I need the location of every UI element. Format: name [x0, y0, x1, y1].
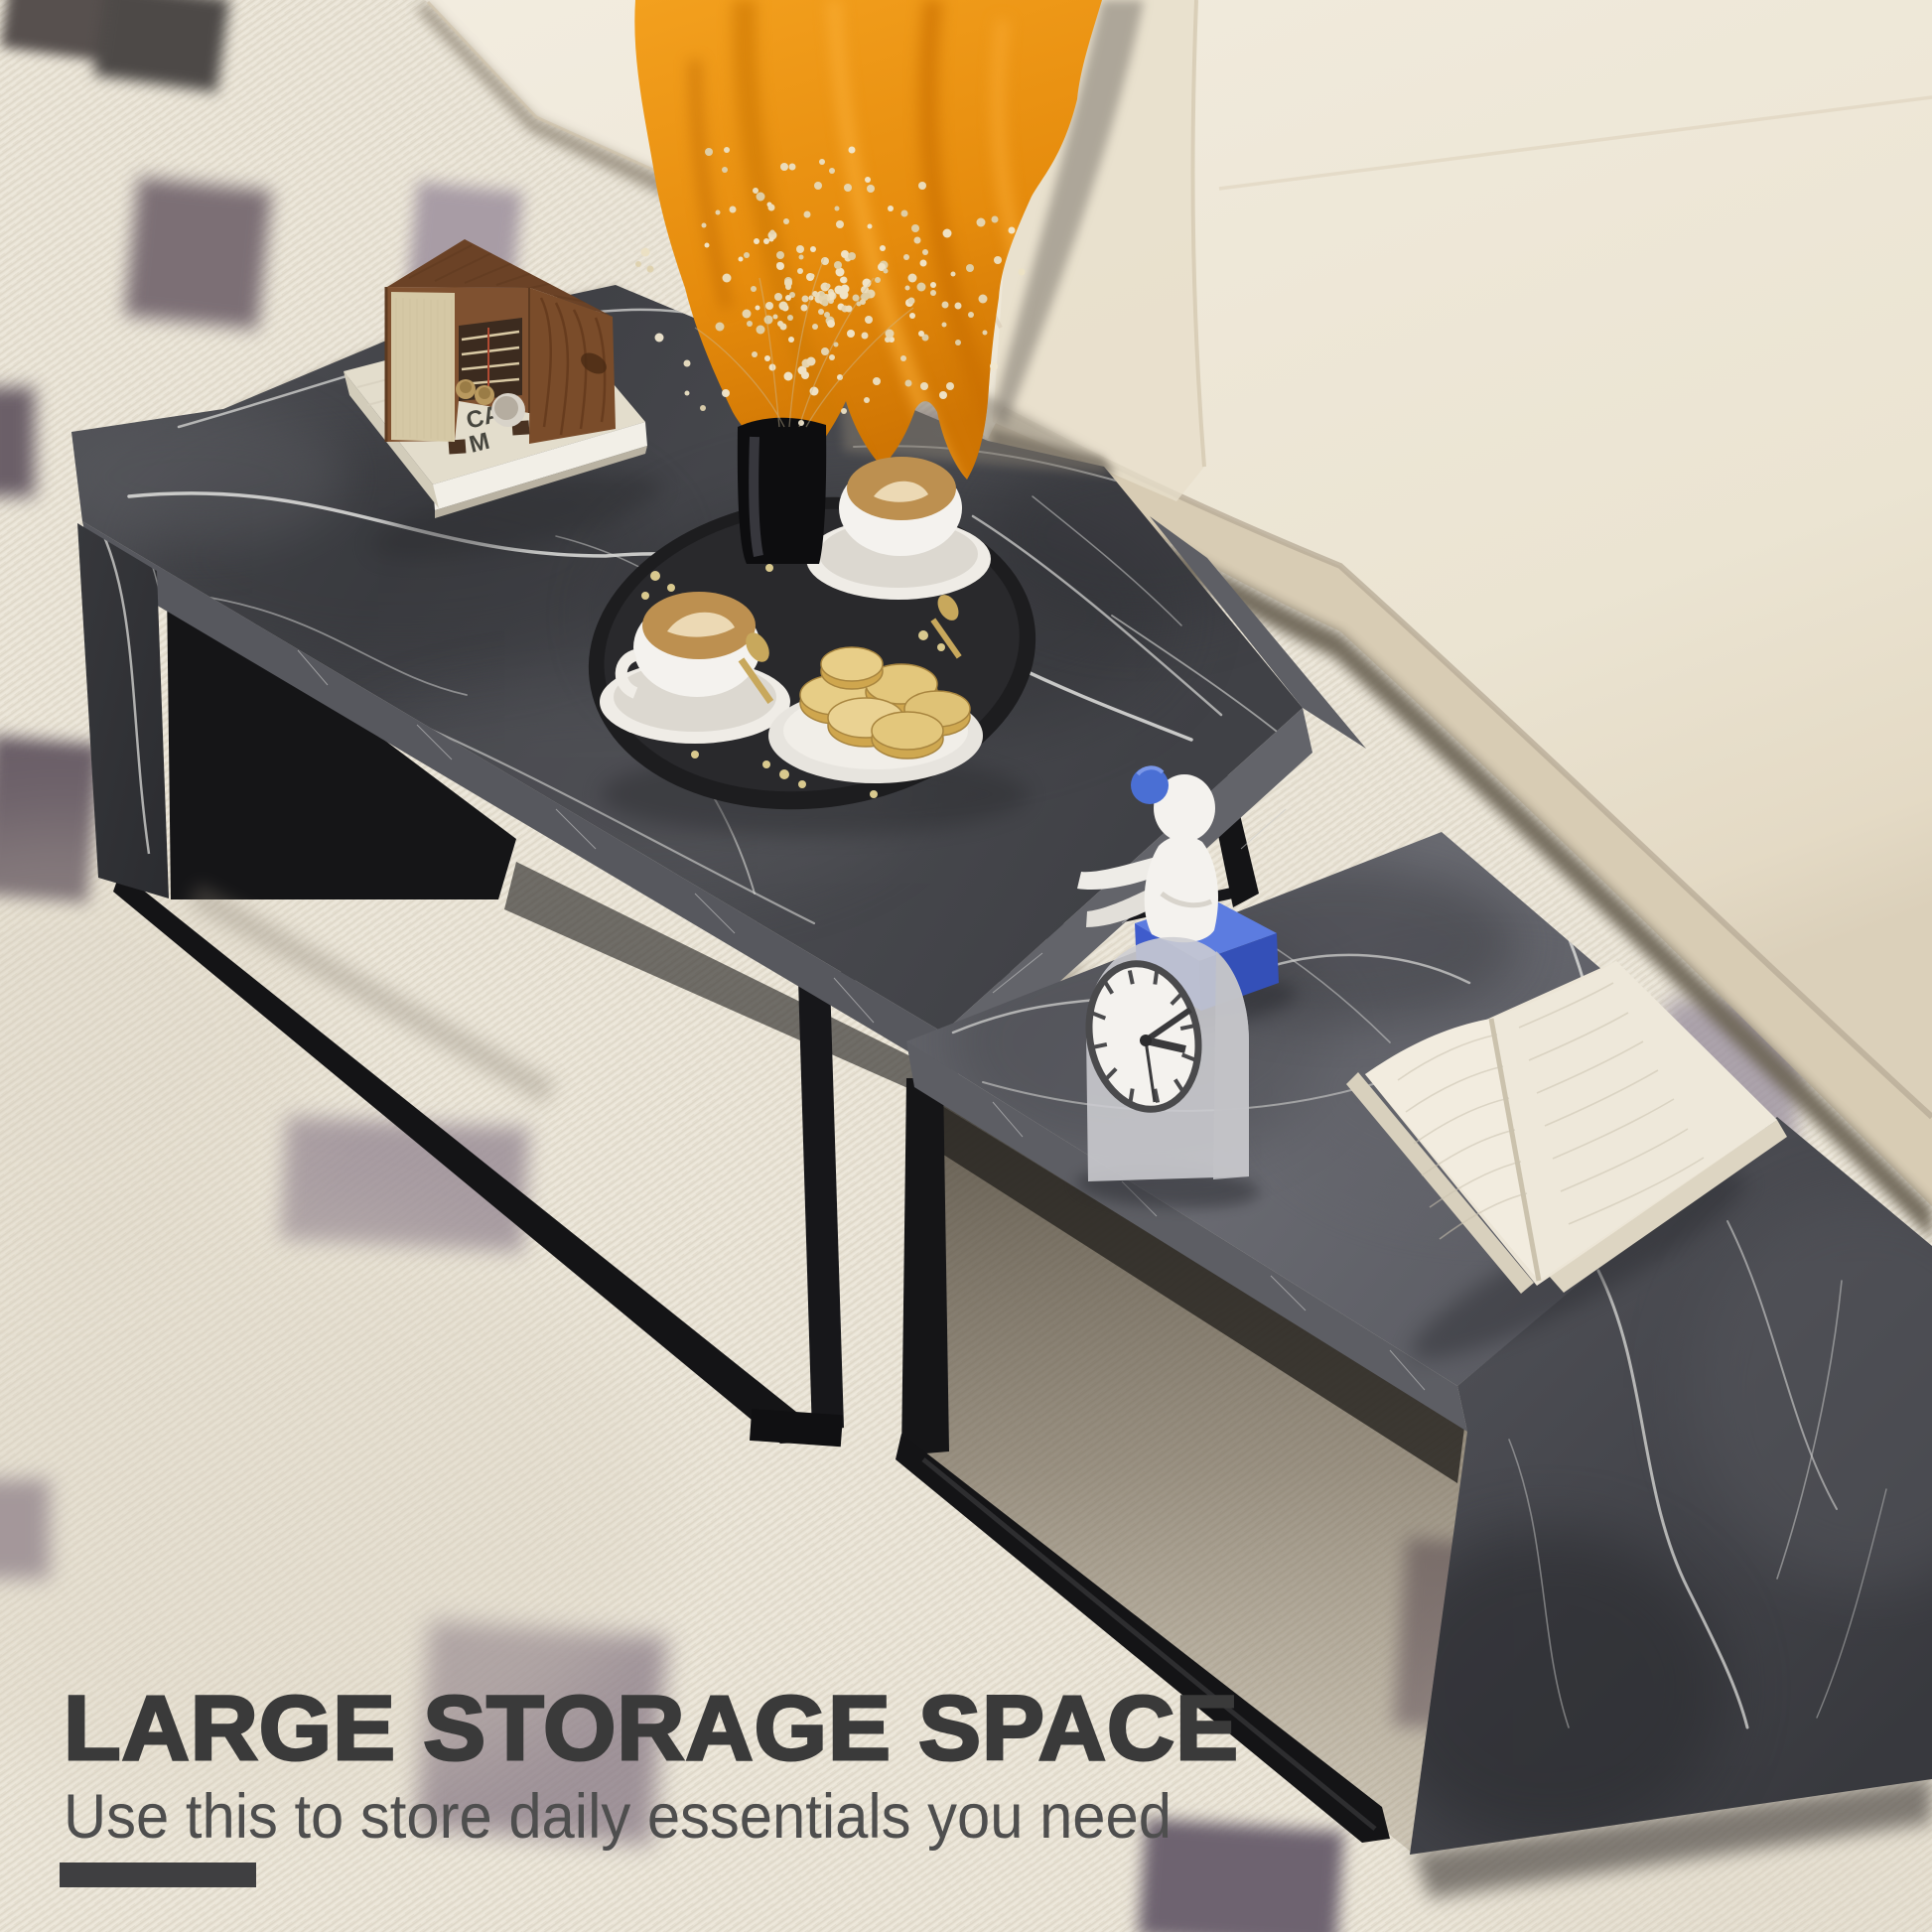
- svg-text:LARGE STORAGE SPACE: LARGE STORAGE SPACE: [64, 1678, 1239, 1779]
- svg-text:Use this to store daily essent: Use this to store daily essentials you n…: [64, 1782, 1172, 1852]
